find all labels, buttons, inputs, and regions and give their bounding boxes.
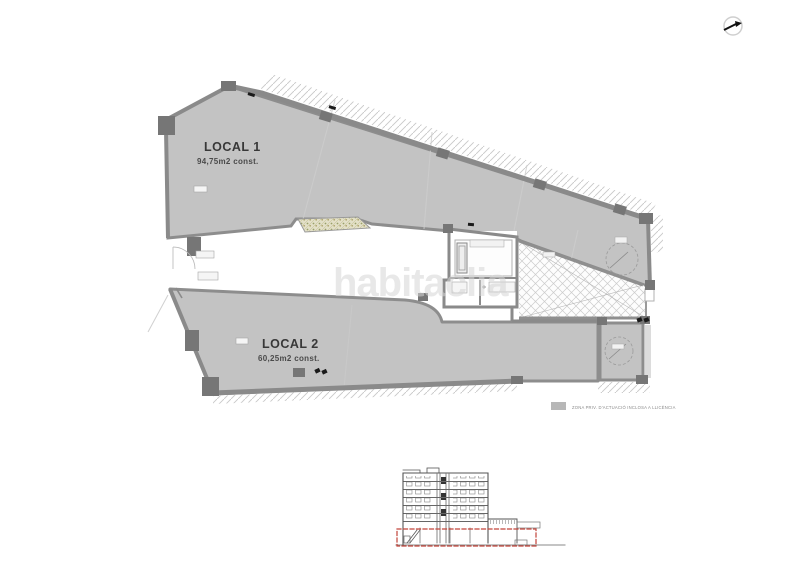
north-arrow-icon bbox=[724, 17, 742, 35]
micro-label bbox=[198, 272, 218, 280]
planter-bed bbox=[298, 217, 370, 232]
floor-plan-page: LOCAL 1 94,75m2 const. LOCAL 2 60,25m2 c… bbox=[0, 0, 800, 565]
micro-label bbox=[194, 186, 207, 192]
building-section bbox=[396, 468, 565, 546]
micro-label bbox=[196, 251, 214, 258]
legend-swatch bbox=[551, 402, 566, 410]
local1-area-label: 94,75m2 const. bbox=[197, 157, 259, 166]
micro-label bbox=[615, 237, 627, 243]
micro-label bbox=[543, 252, 555, 257]
micro-label bbox=[470, 240, 504, 247]
legend-label: ZONA PRIV. D'ACTUACIÓ INCLOSA A LLICÈNCI… bbox=[572, 405, 676, 410]
bottom-right-room bbox=[600, 323, 651, 380]
floor-plan-drawing: LOCAL 1 94,75m2 const. LOCAL 2 60,25m2 c… bbox=[0, 0, 800, 565]
local1-title: LOCAL 1 bbox=[204, 140, 261, 154]
micro-label bbox=[612, 344, 624, 349]
patio-exterior-door bbox=[645, 289, 654, 301]
habitaclia-watermark: habitaclia bbox=[333, 261, 509, 305]
micro-label bbox=[236, 338, 248, 344]
local2-area-label: 60,25m2 const. bbox=[258, 354, 320, 363]
legend: ZONA PRIV. D'ACTUACIÓ INCLOSA A LLICÈNCI… bbox=[551, 402, 676, 410]
local2-title: LOCAL 2 bbox=[262, 337, 319, 351]
